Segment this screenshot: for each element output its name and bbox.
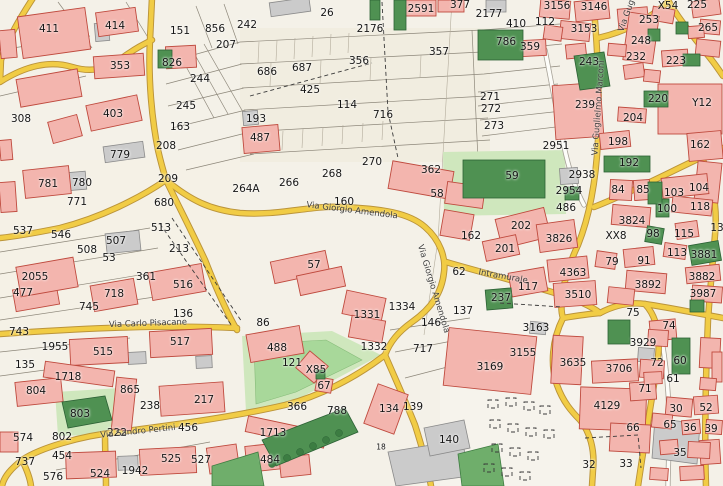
map-canvas[interactable]: 4114141518562422625913772176207353826244… — [0, 0, 723, 486]
map-drawing — [0, 0, 723, 486]
